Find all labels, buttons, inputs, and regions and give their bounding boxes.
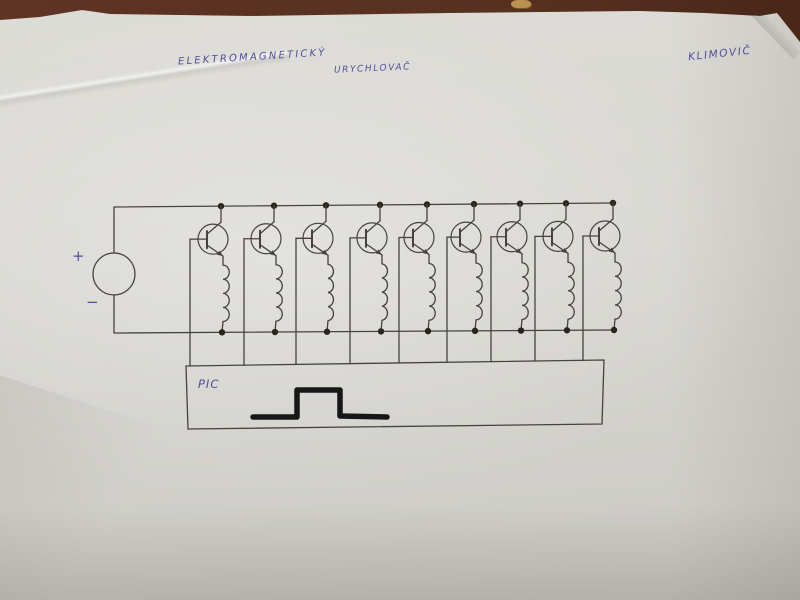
driver-stage-3 (296, 202, 333, 364)
coil-inductor (382, 264, 387, 320)
junction-dot-bottom (611, 327, 617, 333)
top-supply-rail (114, 203, 613, 207)
controller-label: PIC (198, 377, 219, 391)
junction-dot-bottom (378, 328, 384, 334)
coil-inductor (476, 263, 482, 320)
junction-dot-bottom (425, 328, 431, 334)
junction-dot-bottom (518, 327, 524, 333)
source-plus-label: + (72, 247, 85, 265)
coil-inductor (568, 262, 574, 319)
pulse-waveform (253, 390, 387, 417)
coil-inductor (276, 265, 282, 321)
source-minus-label: − (86, 293, 99, 311)
driver-stage-8 (535, 200, 574, 361)
driver-stage-5 (399, 201, 435, 363)
voltage-source-symbol (93, 253, 135, 295)
driver-stage-2 (244, 203, 282, 366)
driver-stage-9 (583, 200, 621, 361)
coil-inductor (328, 264, 333, 320)
coil-inductor (522, 263, 528, 320)
coil-inductor (223, 265, 229, 321)
driver-stage-4 (350, 202, 387, 364)
junction-dot-bottom (324, 329, 330, 335)
junction-dot-bottom (472, 328, 478, 334)
junction-dot-bottom (564, 327, 570, 333)
coil-inductor (429, 263, 435, 320)
bottom-supply-rail (114, 330, 613, 333)
controller-box (186, 360, 604, 429)
driver-stage-1 (190, 203, 229, 366)
coil-inductor (615, 262, 621, 319)
junction-dot-bottom (272, 329, 278, 335)
driver-stage-6 (447, 201, 482, 362)
junction-dot-bottom (219, 329, 225, 335)
driver-stage-7 (491, 201, 528, 362)
circuit-schematic: +−PIC (0, 0, 800, 600)
photo-of-schematic: { "annotations": { "title_line1": "ELEKT… (0, 0, 800, 600)
